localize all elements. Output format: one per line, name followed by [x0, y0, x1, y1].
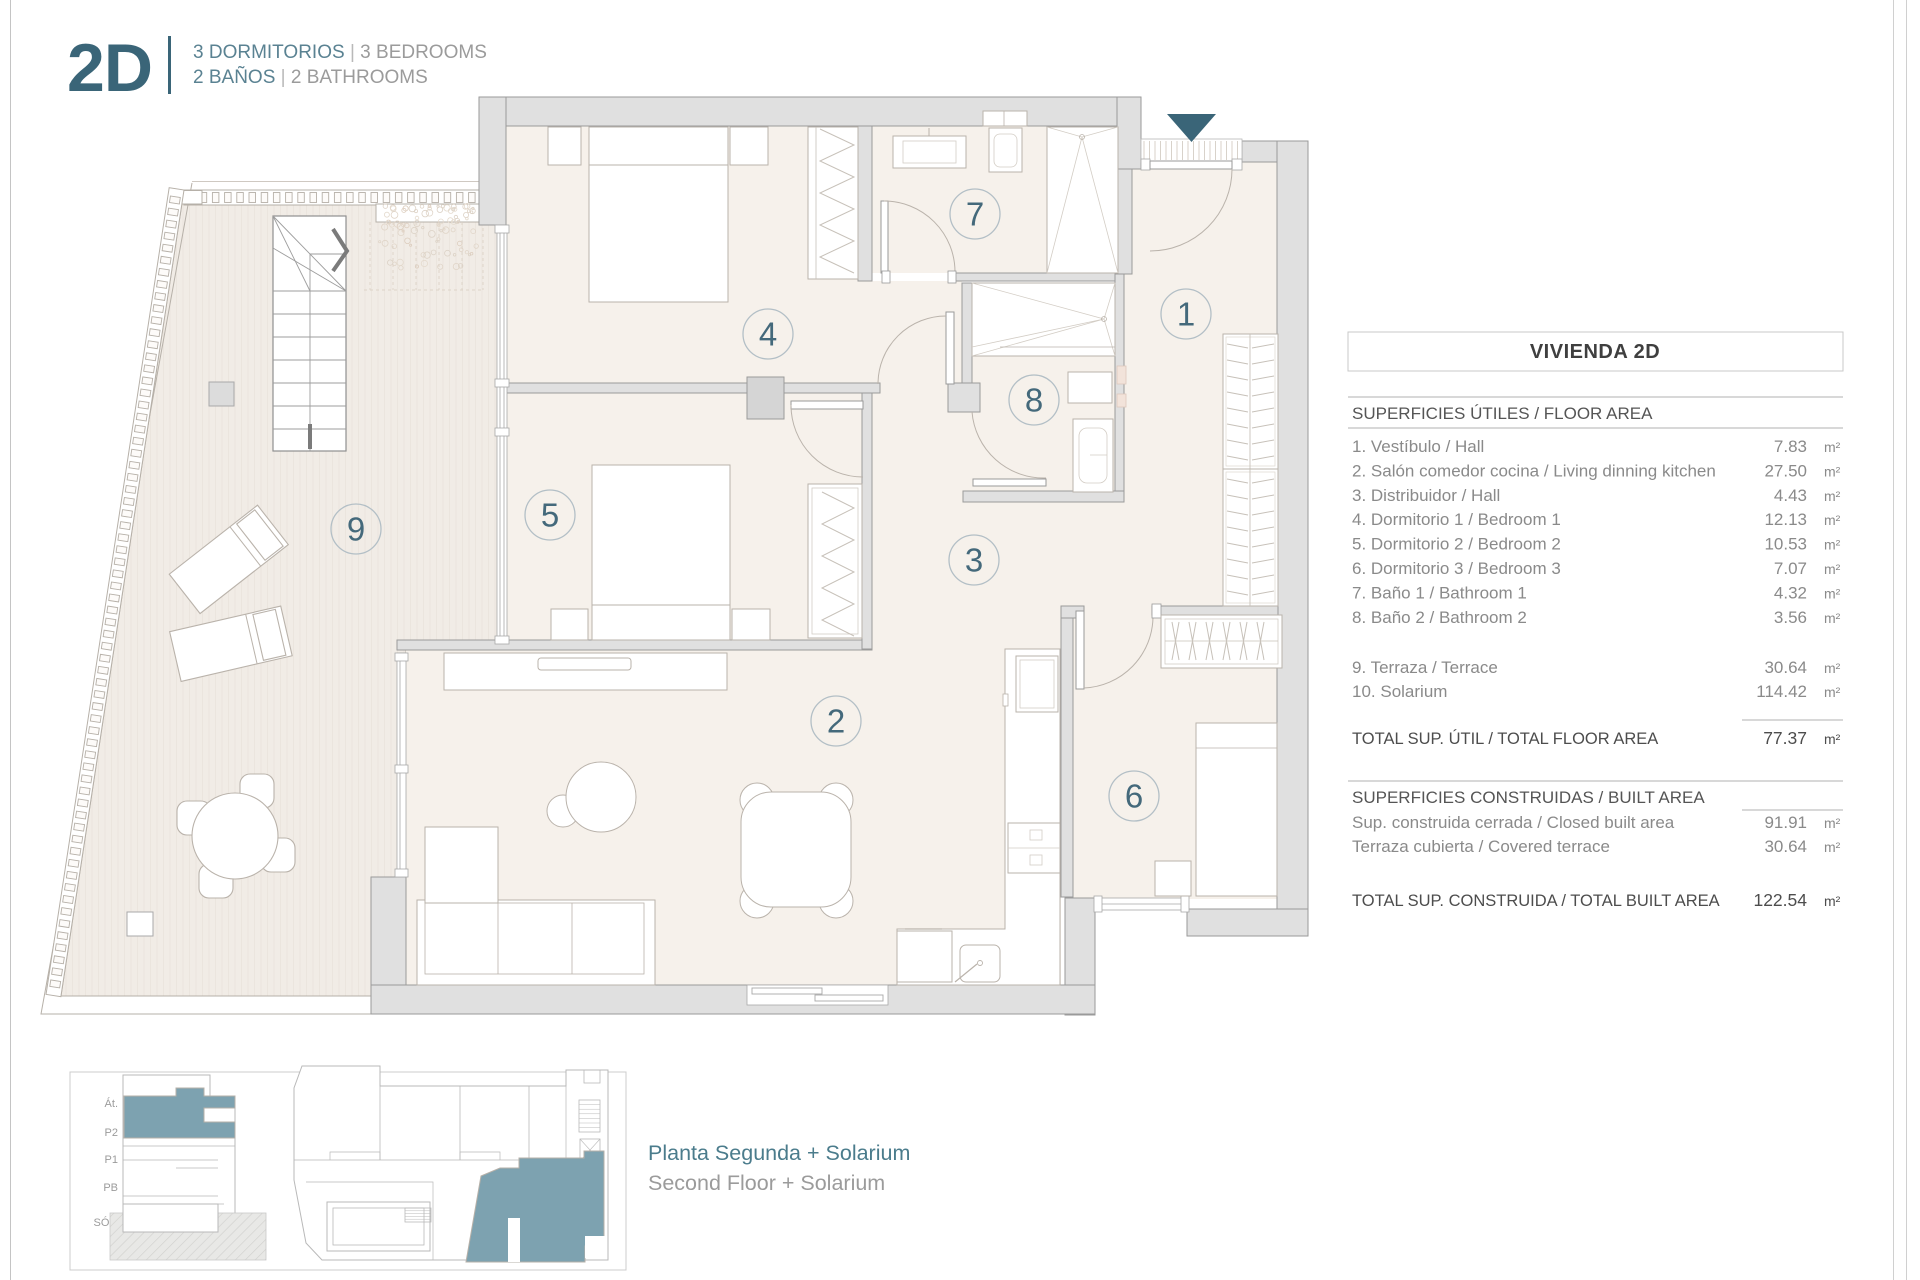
- svg-text:30.64: 30.64: [1764, 658, 1807, 677]
- svg-text:7: 7: [966, 196, 984, 233]
- svg-text:6: 6: [1125, 778, 1143, 815]
- svg-text:4.32: 4.32: [1774, 583, 1807, 602]
- svg-text:Át.: Át.: [105, 1097, 118, 1110]
- svg-text:TOTAL SUP. ÚTIL / TOTAL FLOOR: TOTAL SUP. ÚTIL / TOTAL FLOOR AREA: [1352, 729, 1658, 748]
- svg-text:9. Terraza / Terrace: 9. Terraza / Terrace: [1352, 658, 1498, 677]
- svg-text:m²: m²: [1824, 731, 1841, 747]
- svg-text:m²: m²: [1824, 585, 1841, 601]
- svg-text:m²: m²: [1824, 537, 1841, 553]
- svg-text:m²: m²: [1824, 815, 1841, 831]
- svg-text:10. Solarium: 10. Solarium: [1352, 682, 1447, 701]
- svg-text:1: 1: [1177, 296, 1195, 333]
- svg-text:7.07: 7.07: [1774, 559, 1807, 578]
- svg-text:10.53: 10.53: [1764, 535, 1807, 554]
- svg-text:3: 3: [965, 542, 983, 579]
- svg-text:Second Floor + Solarium: Second Floor + Solarium: [648, 1171, 885, 1195]
- svg-text:2: 2: [827, 703, 845, 740]
- svg-text:m²: m²: [1824, 439, 1841, 455]
- svg-text:Sup. construida cerrada / Clos: Sup. construida cerrada / Closed built a…: [1352, 813, 1675, 832]
- svg-text:2. Salón comedor cocina / Livi: 2. Salón comedor cocina / Living dinning…: [1352, 461, 1716, 480]
- svg-text:2 BAÑOS | 2 BATHROOMS: 2 BAÑOS | 2 BATHROOMS: [193, 66, 428, 88]
- svg-text:4. Dormitorio 1 / Bedroom 1: 4. Dormitorio 1 / Bedroom 1: [1352, 510, 1561, 529]
- svg-text:4.43: 4.43: [1774, 486, 1807, 505]
- svg-text:5. Dormitorio 2 / Bedroom 2: 5. Dormitorio 2 / Bedroom 2: [1352, 535, 1561, 554]
- svg-text:27.50: 27.50: [1764, 461, 1807, 480]
- svg-text:9: 9: [347, 511, 365, 548]
- svg-text:77.37: 77.37: [1763, 728, 1807, 748]
- svg-text:7.83: 7.83: [1774, 437, 1807, 456]
- svg-text:m²: m²: [1824, 463, 1841, 479]
- svg-text:m²: m²: [1824, 561, 1841, 577]
- svg-text:3 DORMITORIOS | 3 BEDROOMS: 3 DORMITORIOS | 3 BEDROOMS: [193, 42, 487, 63]
- svg-text:91.91: 91.91: [1764, 813, 1807, 832]
- svg-text:8. Baño 2 / Bathroom 2: 8. Baño 2 / Bathroom 2: [1352, 608, 1527, 627]
- svg-text:4: 4: [759, 316, 777, 353]
- svg-text:SUPERFICIES ÚTILES / FLOOR ARE: SUPERFICIES ÚTILES / FLOOR AREA: [1352, 404, 1653, 423]
- svg-text:30.64: 30.64: [1764, 837, 1807, 856]
- svg-text:6. Dormitorio 3 / Bedroom 3: 6. Dormitorio 3 / Bedroom 3: [1352, 559, 1561, 578]
- svg-text:TOTAL SUP. CONSTRUIDA / TOTAL: TOTAL SUP. CONSTRUIDA / TOTAL BUILT AREA: [1352, 892, 1720, 910]
- svg-text:Planta Segunda + Solarium: Planta Segunda + Solarium: [648, 1141, 910, 1165]
- svg-text:P1: P1: [105, 1154, 118, 1166]
- svg-text:P2: P2: [105, 1127, 118, 1139]
- svg-text:VIVIENDA 2D: VIVIENDA 2D: [1530, 341, 1660, 363]
- svg-text:m²: m²: [1824, 610, 1841, 626]
- svg-text:3. Distribuidor / Hall: 3. Distribuidor / Hall: [1352, 486, 1500, 505]
- svg-text:m²: m²: [1824, 893, 1841, 909]
- svg-text:114.42: 114.42: [1756, 682, 1807, 701]
- svg-text:SUPERFICIES CONSTRUIDAS / BUIL: SUPERFICIES CONSTRUIDAS / BUILT AREA: [1352, 788, 1705, 807]
- svg-text:8: 8: [1025, 382, 1043, 419]
- svg-text:5: 5: [541, 497, 559, 534]
- svg-text:Terraza cubierta / Covered ter: Terraza cubierta / Covered terrace: [1352, 837, 1610, 856]
- svg-text:3.56: 3.56: [1774, 608, 1807, 627]
- svg-text:12.13: 12.13: [1764, 510, 1807, 529]
- svg-text:m²: m²: [1824, 512, 1841, 528]
- svg-text:PB: PB: [103, 1182, 118, 1194]
- svg-text:1. Vestíbulo / Hall: 1. Vestíbulo / Hall: [1352, 437, 1484, 456]
- svg-text:m²: m²: [1824, 488, 1841, 504]
- svg-text:7. Baño 1 / Bathroom 1: 7. Baño 1 / Bathroom 1: [1352, 583, 1527, 602]
- svg-text:2D: 2D: [67, 30, 152, 106]
- svg-text:m²: m²: [1824, 839, 1841, 855]
- svg-text:m²: m²: [1824, 660, 1841, 676]
- svg-text:122.54: 122.54: [1753, 890, 1807, 910]
- svg-text:m²: m²: [1824, 684, 1841, 700]
